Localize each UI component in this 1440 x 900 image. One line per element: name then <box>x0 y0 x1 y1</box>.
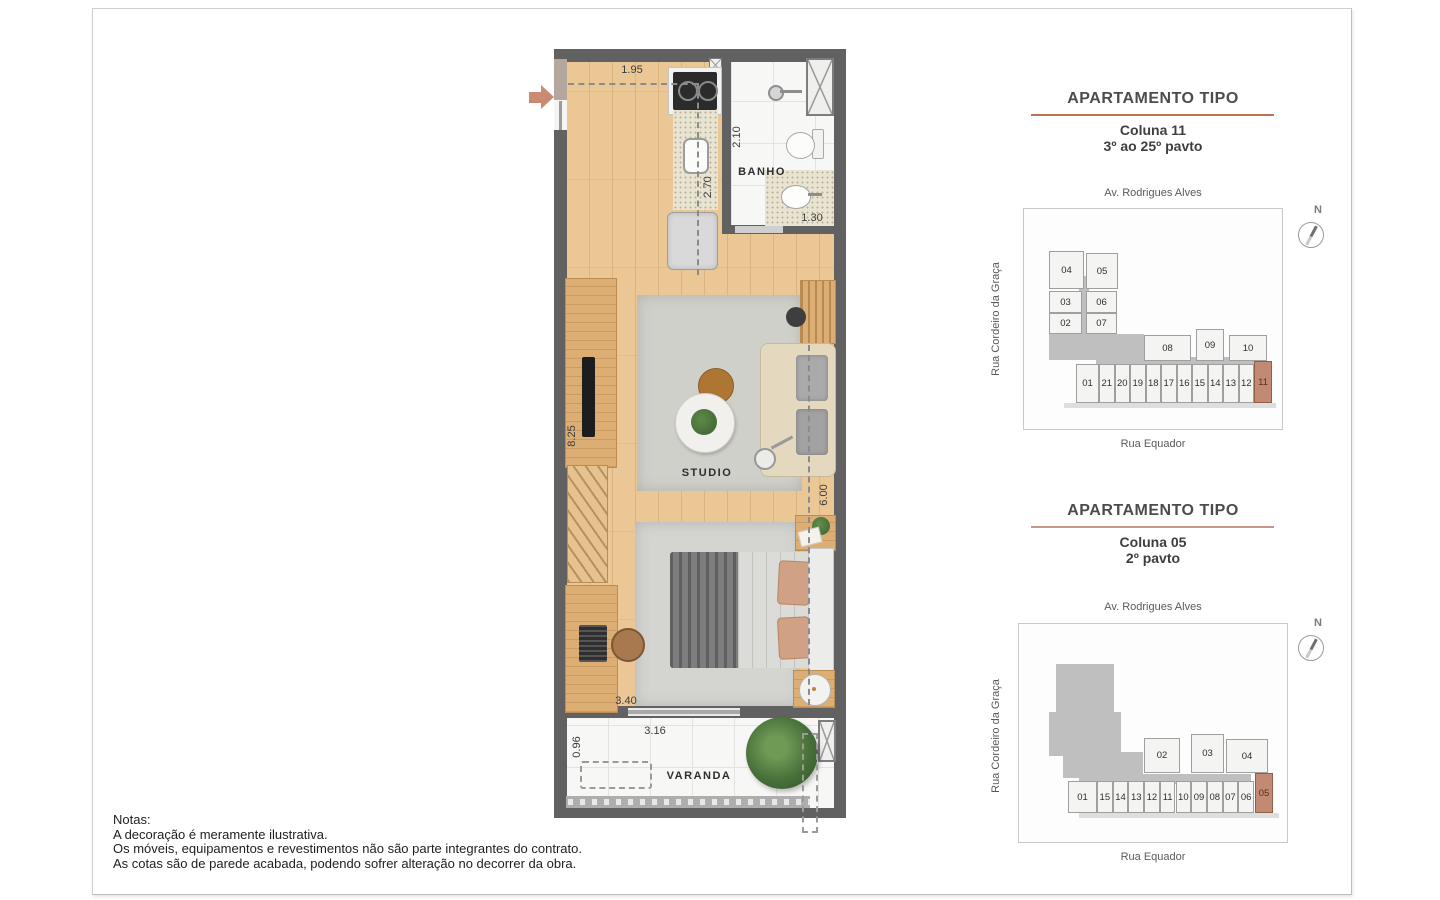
bath-faucet <box>808 193 822 196</box>
tv <box>582 357 595 437</box>
notes-title: Notas: <box>113 813 582 828</box>
table-plant <box>691 409 717 435</box>
stool <box>786 307 806 327</box>
sliding-door <box>628 708 740 716</box>
laptop <box>579 625 607 662</box>
bed-pillow <box>777 616 811 660</box>
compass-needle-icon <box>1305 226 1318 246</box>
street-left-label: Rua Cordeiro da Graça <box>990 239 1002 399</box>
keyplan-coluna-05: 020304 011514131211100908070605 <box>1018 623 1288 843</box>
keyplan-unit-19: 19 <box>1130 364 1146 403</box>
keyplan-unit-05: 05 <box>1255 773 1273 813</box>
street-bottom-label: Rua Equador <box>1018 851 1288 863</box>
keyplan-unit-16: 16 <box>1177 364 1193 403</box>
fridge <box>667 212 718 270</box>
dim-kitchen-width: 1.95 <box>607 64 657 76</box>
wall-kitchen-bath <box>722 62 731 233</box>
shower-head-icon <box>768 85 784 101</box>
keyplan-unit-14: 14 <box>1113 781 1129 813</box>
dim-bedroom-width: 3.40 <box>601 695 651 707</box>
keyplan-unit-13: 13 <box>1128 781 1144 813</box>
compass-icon <box>1298 635 1324 661</box>
entry-arrow-head-icon <box>541 85 554 109</box>
section-floors: 3º ao 25º pavto <box>1023 138 1283 154</box>
wall-top <box>554 49 846 62</box>
entry-arrow-icon <box>529 92 541 103</box>
keyplan-unit-20: 20 <box>1115 364 1131 403</box>
keyplan-unit-07: 07 <box>1223 781 1239 813</box>
bed-duvet <box>670 552 738 668</box>
entry-niche-wall <box>554 59 567 100</box>
disc-center-dot <box>812 687 816 691</box>
room-label-bath: BANHO <box>732 166 792 178</box>
room-label-balcony: VARANDA <box>649 770 749 782</box>
section-column: Coluna 11 <box>1023 122 1283 138</box>
keyplan-unit-15: 15 <box>1097 781 1113 813</box>
compass-n-label: N <box>1314 617 1322 629</box>
keyplan-unit-11: 11 <box>1254 361 1272 403</box>
keyplan-unit-14: 14 <box>1208 364 1224 403</box>
title-rule <box>1031 526 1274 528</box>
floor-plan: 1.95 2.10 2.70 1.30 8.25 6.00 3.40 3.16 … <box>550 45 850 825</box>
desk-chair <box>611 628 645 662</box>
dim-studio-depth: 6.00 <box>818 480 830 510</box>
pipes-outline <box>802 733 818 833</box>
room-label-studio: STUDIO <box>667 467 747 479</box>
sofa-cushion <box>796 355 828 401</box>
keyplan-unit-15: 15 <box>1192 364 1208 403</box>
shelf-rack <box>567 465 608 583</box>
keyplan-unit-13: 13 <box>1223 364 1239 403</box>
section-floors: 2º pavto <box>1018 550 1288 566</box>
keyplan-coluna-11: 040503060207 080910 01212019181716151413… <box>1023 208 1283 430</box>
bath-door <box>735 226 783 233</box>
shaft-x-top <box>806 58 834 116</box>
balcony-drain <box>566 796 810 808</box>
keyplan-unit-17: 17 <box>1161 364 1177 403</box>
notes-line: As cotas são de parede acabada, podendo … <box>113 857 582 872</box>
street-top-label: Av. Rodrigues Alves <box>1018 601 1288 613</box>
section-column: Coluna 05 <box>1018 534 1288 550</box>
keyplan-unit-10: 10 <box>1176 781 1192 813</box>
entry-door-leaf <box>559 101 562 130</box>
dim-bath-width: 1.30 <box>797 212 827 224</box>
bed-pillow <box>777 560 811 606</box>
keyplan-unit-01: 01 <box>1076 364 1099 403</box>
compass-needle-icon <box>1305 639 1318 659</box>
keyplan-unit-12: 12 <box>1239 364 1255 403</box>
slat-bench <box>800 280 836 344</box>
compass-n-label: N <box>1314 204 1322 216</box>
shaft-x-balcony <box>818 720 836 762</box>
keyplan-unit-12: 12 <box>1144 781 1160 813</box>
keyplan-unit-01: 01 <box>1068 781 1097 813</box>
dim-balcony-width: 3.16 <box>630 725 680 737</box>
compass-icon <box>1298 222 1324 248</box>
street-bottom-label: Rua Equador <box>1023 438 1283 450</box>
keyplan-unit-09: 09 <box>1191 781 1207 813</box>
notes-block: Notas: A decoração é meramente ilustrati… <box>113 813 582 871</box>
burner-icon <box>698 81 718 101</box>
street-left-label: Rua Cordeiro da Graça <box>990 656 1002 816</box>
projection-line <box>808 345 810 705</box>
title-rule <box>1031 114 1274 116</box>
keyplan-bottom-units: 011514131211100908070605 <box>1019 624 1287 842</box>
bed-headboard <box>808 548 834 672</box>
ac-unit-outline <box>580 761 652 789</box>
dim-bath-length: 2.10 <box>731 122 743 152</box>
keyplan-unit-18: 18 <box>1146 364 1162 403</box>
projection-line <box>697 83 699 275</box>
sofa-cushion <box>796 409 828 455</box>
notes-line: A decoração é meramente ilustrativa. <box>113 828 582 843</box>
dim-kitchen-depth: 2.70 <box>702 172 714 202</box>
keyplan-bottom-units: 012120191817161514131211 <box>1024 209 1282 429</box>
dim-balcony-depth: 0.96 <box>571 732 583 762</box>
section-title: APARTAMENTO TIPO <box>1018 502 1288 520</box>
street-top-label: Av. Rodrigues Alves <box>1023 187 1283 199</box>
keyplan-unit-06: 06 <box>1238 781 1254 813</box>
dim-studio-length: 8.25 <box>566 421 578 451</box>
section-coluna-11: APARTAMENTO TIPO Coluna 11 3º ao 25º pav… <box>1023 90 1283 460</box>
keyplan-unit-21: 21 <box>1099 364 1115 403</box>
toilet-bowl <box>786 132 815 159</box>
bath-sink <box>781 185 811 209</box>
shower-arm <box>780 90 802 93</box>
section-coluna-05: APARTAMENTO TIPO Coluna 05 2º pavto Av. … <box>1018 502 1288 872</box>
notes-line: Os móveis, equipamentos e revestimentos … <box>113 842 582 857</box>
section-title: APARTAMENTO TIPO <box>1023 90 1283 108</box>
floor-lamp <box>754 448 776 470</box>
projection-line <box>568 83 698 85</box>
keyplan-unit-11: 11 <box>1160 781 1176 813</box>
kitchen-sink <box>683 138 709 174</box>
keyplan-unit-08: 08 <box>1207 781 1223 813</box>
